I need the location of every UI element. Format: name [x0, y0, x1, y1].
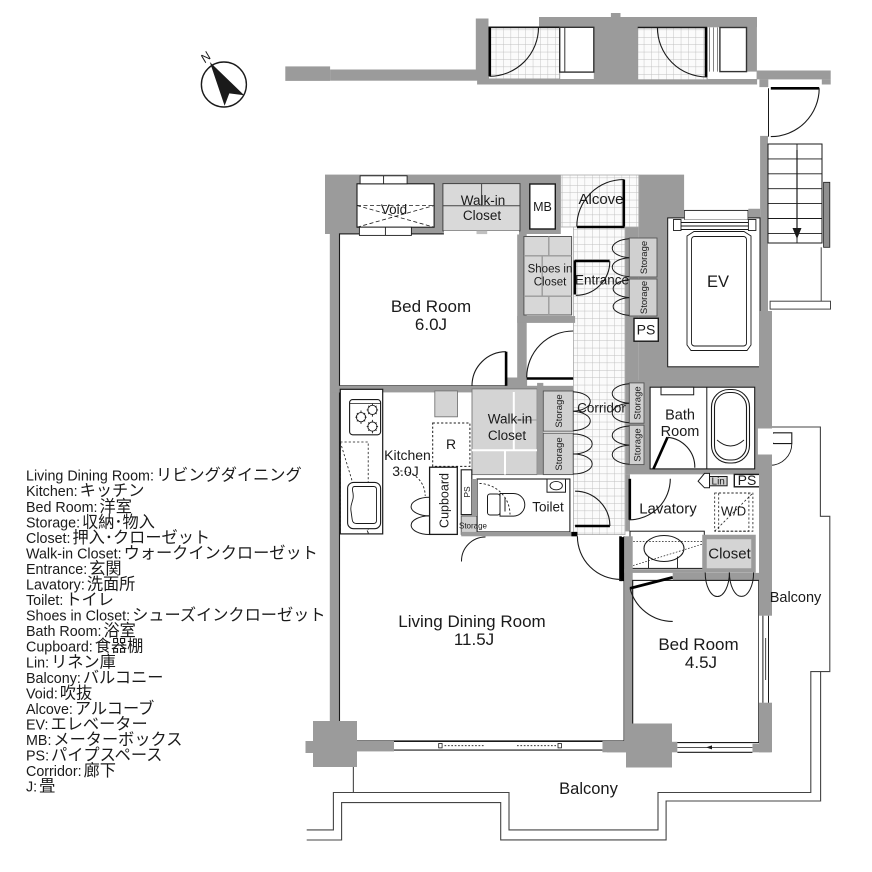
svg-text:Storage: Storage	[632, 428, 643, 461]
svg-text:J:畳: J:畳	[26, 778, 55, 796]
svg-text:4.5J: 4.5J	[685, 653, 717, 672]
svg-text:Lin: Lin	[712, 477, 725, 488]
svg-text:Bed Room: Bed Room	[658, 635, 738, 654]
svg-text:Closet: Closet	[534, 277, 567, 289]
svg-text:Entrance: Entrance	[575, 273, 629, 288]
svg-text:Balcony:バルコニー: Balcony:バルコニー	[26, 669, 163, 687]
svg-text:MB: MB	[533, 200, 552, 214]
svg-text:PS: PS	[738, 472, 757, 488]
svg-text:Bed Room: Bed Room	[391, 297, 471, 316]
svg-text:Storage: Storage	[554, 394, 565, 427]
svg-text:Walk-in Closet:ウォークインクローゼット: Walk-in Closet:ウォークインクローゼット	[26, 544, 318, 562]
svg-text:Alcove: Alcove	[578, 191, 623, 208]
svg-text:11.5J: 11.5J	[454, 630, 494, 649]
svg-text:Room: Room	[661, 424, 700, 440]
svg-text:Closet: Closet	[488, 428, 527, 443]
svg-text:Storage: Storage	[554, 437, 565, 470]
svg-text:Living Dining Room: Living Dining Room	[398, 612, 545, 631]
svg-text:Void: Void	[381, 202, 407, 217]
svg-text:Balcony: Balcony	[770, 590, 822, 606]
svg-text:PS: PS	[637, 322, 656, 338]
svg-text:PS: PS	[462, 486, 472, 498]
svg-text:Lavatory: Lavatory	[639, 501, 697, 518]
svg-text:Living Dining Room:リビングダイニング: Living Dining Room:リビングダイニング	[26, 467, 302, 485]
svg-text:Storage: Storage	[639, 241, 650, 274]
svg-text:6.0J: 6.0J	[415, 315, 447, 334]
svg-text:Closet: Closet	[708, 546, 751, 563]
svg-text:Storage: Storage	[632, 386, 643, 419]
svg-text:Storage: Storage	[459, 522, 488, 531]
svg-text:Corridor: Corridor	[577, 401, 626, 416]
svg-text:Walk-in: Walk-in	[461, 193, 506, 208]
svg-text:Closet: Closet	[463, 208, 502, 223]
svg-text:Toilet:トイレ: Toilet:トイレ	[26, 591, 114, 609]
svg-text:Balcony: Balcony	[559, 780, 618, 798]
svg-text:R: R	[446, 436, 456, 452]
svg-text:Storage: Storage	[639, 281, 650, 314]
svg-text:Shoes in Closet:シューズインクローゼット: Shoes in Closet:シューズインクローゼット	[26, 607, 326, 625]
svg-text:Kitchen: Kitchen	[384, 447, 431, 463]
svg-text:W/D: W/D	[721, 504, 746, 519]
svg-text:Toilet: Toilet	[532, 500, 564, 515]
svg-text:Bath: Bath	[665, 408, 695, 424]
svg-text:3.0J: 3.0J	[392, 463, 418, 479]
svg-text:EV: EV	[707, 273, 729, 291]
svg-text:Shoes in: Shoes in	[528, 264, 573, 276]
svg-text:Cupboard: Cupboard	[437, 473, 451, 528]
svg-text:Walk-in: Walk-in	[488, 412, 533, 427]
